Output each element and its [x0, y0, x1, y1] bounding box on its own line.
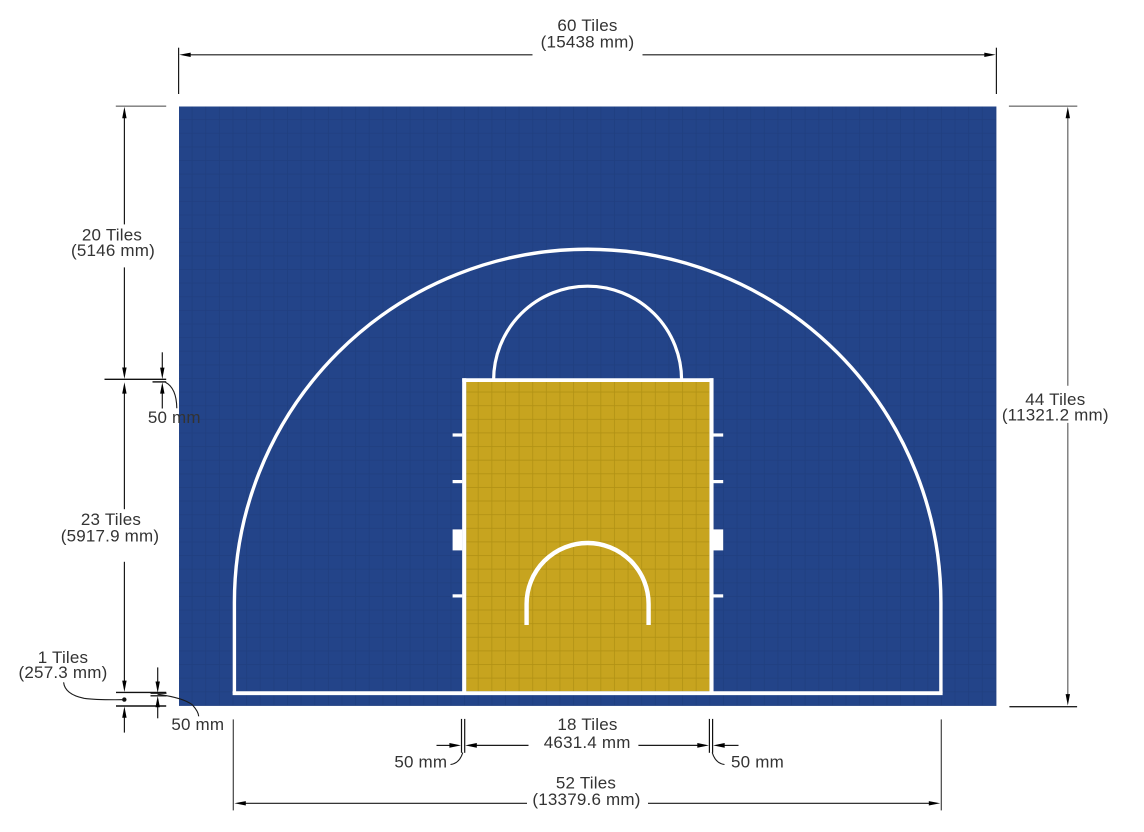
svg-text:50 mm: 50 mm [148, 408, 201, 427]
svg-text:50 mm: 50 mm [394, 753, 447, 772]
svg-text:50 mm: 50 mm [731, 753, 784, 772]
svg-text:(11321.2 mm): (11321.2 mm) [1002, 406, 1109, 425]
svg-text:(5146 mm): (5146 mm) [71, 241, 155, 260]
svg-text:(5917.9 mm): (5917.9 mm) [61, 526, 160, 545]
svg-text:(15438 mm): (15438 mm) [541, 33, 635, 52]
svg-text:50 mm: 50 mm [171, 715, 224, 734]
svg-text:18 Tiles: 18 Tiles [557, 715, 617, 734]
svg-text:4631.4 mm: 4631.4 mm [544, 733, 631, 752]
svg-text:(257.3 mm): (257.3 mm) [19, 663, 108, 682]
svg-text:(13379.6 mm): (13379.6 mm) [532, 790, 640, 809]
